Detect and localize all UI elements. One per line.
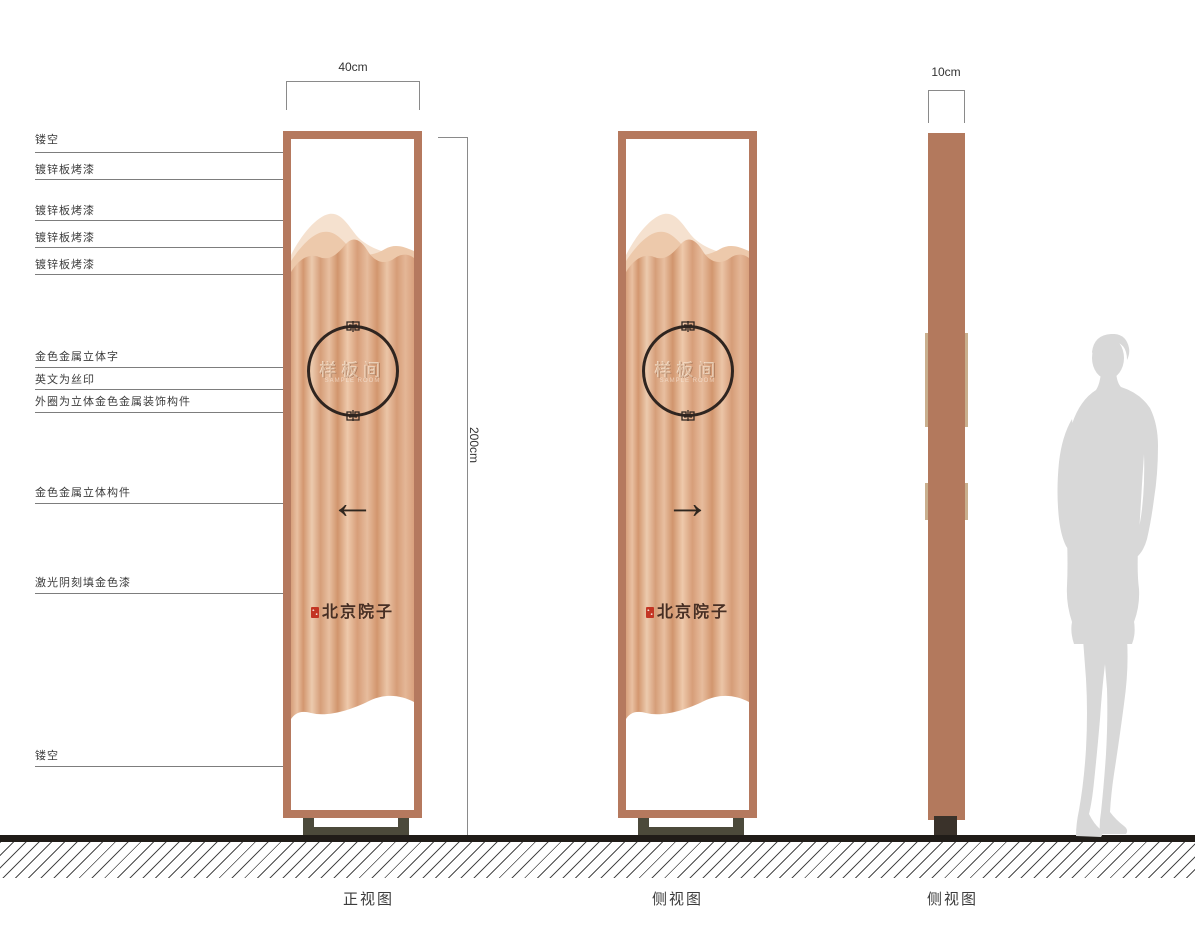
annotation-leader-line [35,367,322,368]
annotation-label: 外圈为立体金色金属装饰构件 [35,393,191,409]
ground-hatch [0,842,1195,878]
signage-panel-front: 样板间 SAMPLE ROOM ← 北京院子 [283,131,422,818]
annotation-label: 镂空 [35,747,59,763]
caption-front-view: 正视图 [343,888,394,909]
annotation-label: 激光阴刻填金色漆 [35,574,131,590]
annotation-leader-line [35,179,284,180]
circle-emblem: 样板间 SAMPLE ROOM [307,325,399,417]
annotation-label: 金色金属立体构件 [35,484,131,500]
circle-emblem: 样板间 SAMPLE ROOM [642,325,734,417]
base-bar [638,827,744,835]
dimension-front-width: 40cm [323,60,383,74]
arrow-right-icon: → [626,473,749,531]
annotation-label: 镀锌板烤漆 [35,202,95,218]
annotation-leader-line [35,412,308,413]
emblem-subtitle: SAMPLE ROOM [645,378,731,384]
annotation-leader-line [35,274,296,275]
annotation-label: 镀锌板烤漆 [35,256,95,272]
dimension-tick [964,90,965,123]
dimension-bracket [286,81,420,82]
human-silhouette [1032,334,1172,844]
dimension-height: 200cm [467,423,481,467]
annotation-label: 镀锌板烤漆 [35,229,95,245]
fret-ornament-icon [680,410,696,421]
signage-design-sheet: 镂空 镀锌板烤漆 镀锌板烤漆 镀锌板烤漆 镀锌板烤漆 金色金属立体字 英文为丝印… [0,0,1195,927]
fret-ornament-icon [680,321,696,332]
annotation-leader-line [35,152,306,153]
emblem-subtitle: SAMPLE ROOM [310,378,396,384]
annotation-leader-line [35,766,302,767]
dimension-tick [419,81,420,110]
brand-calligraphy: 北京院子 [291,598,414,620]
dimension-tick [928,90,929,123]
annotation-label: 英文为丝印 [35,371,95,387]
dimension-tick [438,137,468,138]
dimension-bracket [928,90,965,91]
annotation-leader-line [35,220,322,221]
seal-icon [311,607,319,618]
dimension-tick [286,81,287,110]
annotation-label: 镀锌板烤漆 [35,161,95,177]
dimension-height-line [467,137,468,835]
annotation-leader-line [35,247,296,248]
fret-ornament-icon [345,410,361,421]
caption-profile-view: 侧视图 [927,888,978,909]
signage-panel-side: 样板间 SAMPLE ROOM → 北京院子 [618,131,757,818]
signage-panel-profile [928,133,965,820]
base-bar [303,827,409,835]
arrow-left-icon: ← [291,473,414,531]
ground-line [0,835,1195,842]
fret-ornament-icon [345,321,361,332]
caption-side-view: 侧视图 [652,888,703,909]
brand-calligraphy: 北京院子 [626,598,749,620]
annotation-label: 镂空 [35,131,59,147]
annotation-label: 金色金属立体字 [35,348,119,364]
seal-icon [646,607,654,618]
dimension-side-depth: 10cm [916,65,976,79]
